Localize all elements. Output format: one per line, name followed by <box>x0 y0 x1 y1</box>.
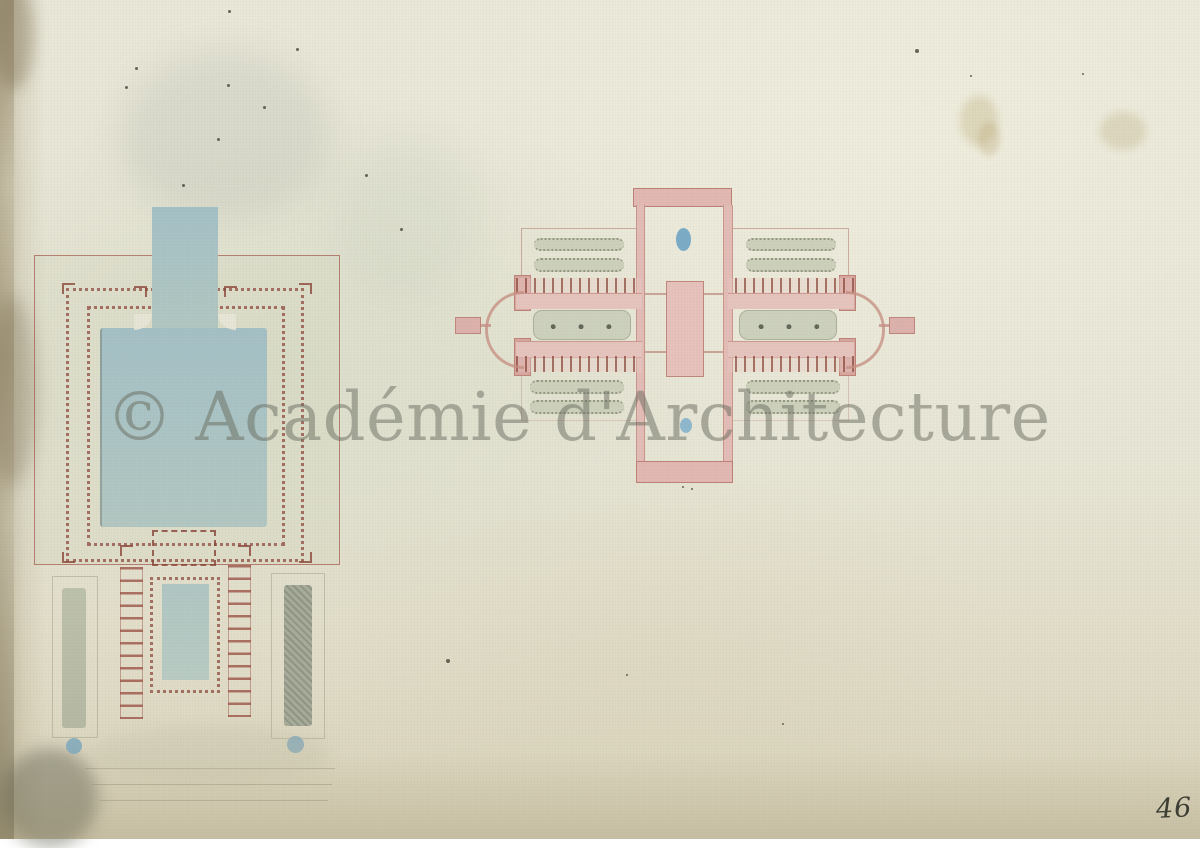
paper-speck <box>227 84 230 87</box>
paper-speck <box>691 488 693 490</box>
peristyle-bracket <box>299 283 312 294</box>
court-bracket <box>238 545 251 556</box>
spine-bottom-block <box>636 461 733 483</box>
apse-tab <box>455 317 481 334</box>
colonnade-band <box>516 293 642 309</box>
colonnade-ticks <box>516 356 642 372</box>
paper-speck <box>263 106 266 109</box>
fountain-dot-left <box>66 738 82 754</box>
terrace-line <box>92 784 332 785</box>
paper-speck <box>217 138 220 141</box>
paper-speck <box>400 228 403 231</box>
paper-speck <box>446 659 450 663</box>
canal-stem-water <box>152 207 218 333</box>
paper-speck <box>782 723 784 725</box>
small-court-dashes <box>152 530 216 566</box>
peristyle-bracket <box>299 552 312 563</box>
wing-central-gallery <box>533 310 631 340</box>
spine-top-block <box>633 188 732 207</box>
wing-connector <box>704 351 723 353</box>
peristyle-bracket <box>134 286 147 297</box>
lower-court-ladder-corridor-right <box>228 565 251 717</box>
paper-speck <box>682 486 684 488</box>
paper-speck <box>915 49 919 53</box>
paper-speck <box>970 75 972 77</box>
grey-wash-smudge <box>120 50 330 220</box>
scanned-drawing-page: © Académie d'Architecture 46 <box>0 0 1200 839</box>
wing-green-strip <box>534 238 624 251</box>
wing-outline-top <box>521 228 637 283</box>
colonnade-north <box>728 278 854 309</box>
paper-speck <box>228 10 231 13</box>
wing-green-strip <box>746 258 836 272</box>
wing-outline-top <box>733 228 849 283</box>
wing-connector <box>645 293 666 295</box>
peristyle-bracket <box>224 286 237 297</box>
peristyle-bracket <box>62 283 75 294</box>
paper-speck <box>1082 73 1084 75</box>
paper-speck <box>182 184 185 187</box>
colonnade-south <box>516 341 642 372</box>
peristyle-bracket <box>62 552 75 563</box>
paper-speck <box>365 174 368 177</box>
lower-court-ladder-corridor-left <box>120 567 143 719</box>
terrace-wash <box>90 726 330 782</box>
wing-green-strip <box>746 238 836 251</box>
pool-water <box>162 584 209 680</box>
spine-blue-oval <box>676 228 691 251</box>
colonnade-ticks <box>516 278 642 294</box>
yellow-stain-3 <box>1100 112 1146 150</box>
yellow-stain-2 <box>978 122 1000 156</box>
terrace-line <box>100 800 328 801</box>
paper-speck <box>135 67 138 70</box>
colonnade-south <box>728 341 854 372</box>
paper-speck <box>296 48 299 51</box>
apse-tab <box>889 317 915 334</box>
wing-green-strip <box>534 258 624 272</box>
colonnade-band <box>728 293 854 309</box>
wing-connector <box>645 351 666 353</box>
court-bracket <box>120 545 133 556</box>
paper-speck <box>125 86 128 89</box>
crossing-hall <box>666 281 704 377</box>
colonnade-north <box>516 278 642 309</box>
wing-central-gallery <box>739 310 837 340</box>
copyright-watermark: © Académie d'Architecture <box>106 378 1126 456</box>
garden-bed-left <box>62 588 86 728</box>
colonnade-ticks <box>728 278 854 294</box>
colonnade-ticks <box>728 356 854 372</box>
folio-page-number: 46 <box>1155 792 1193 825</box>
garden-bed-right <box>284 585 312 726</box>
paper-speck <box>626 674 628 676</box>
wing-connector <box>704 293 723 295</box>
